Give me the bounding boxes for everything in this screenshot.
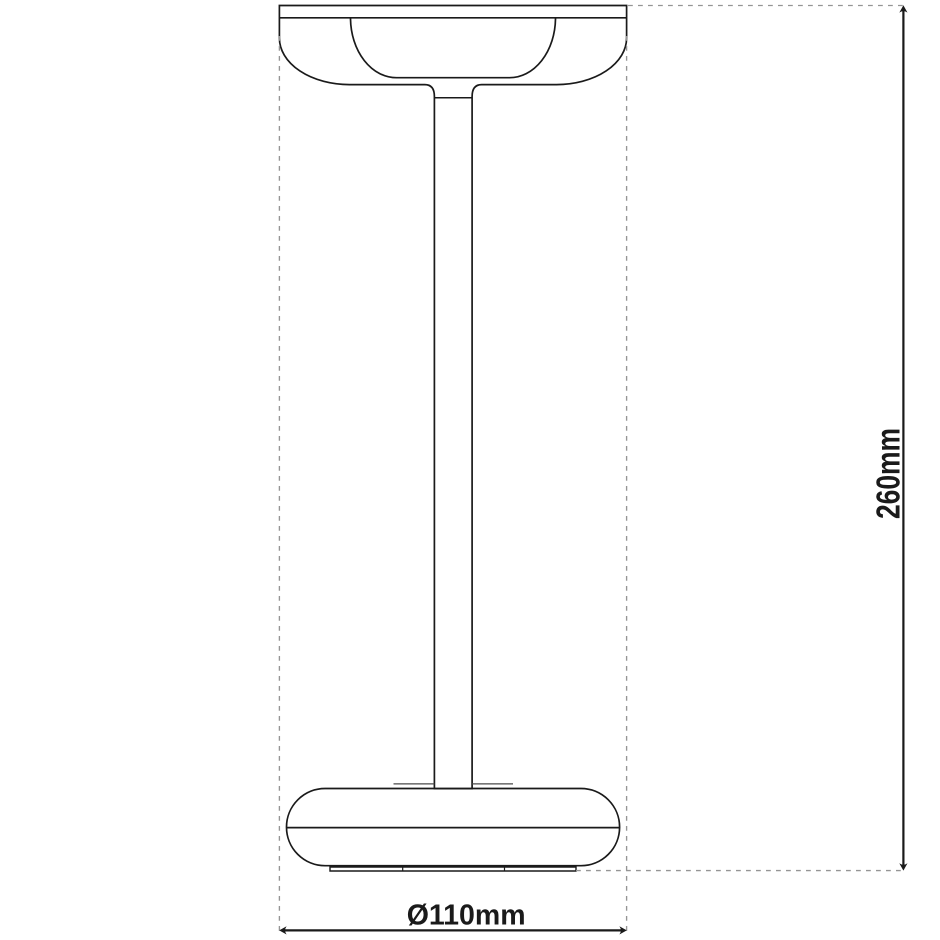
svg-text:Ø110mm: Ø110mm [407,900,526,932]
svg-text:260mm: 260mm [870,428,907,519]
